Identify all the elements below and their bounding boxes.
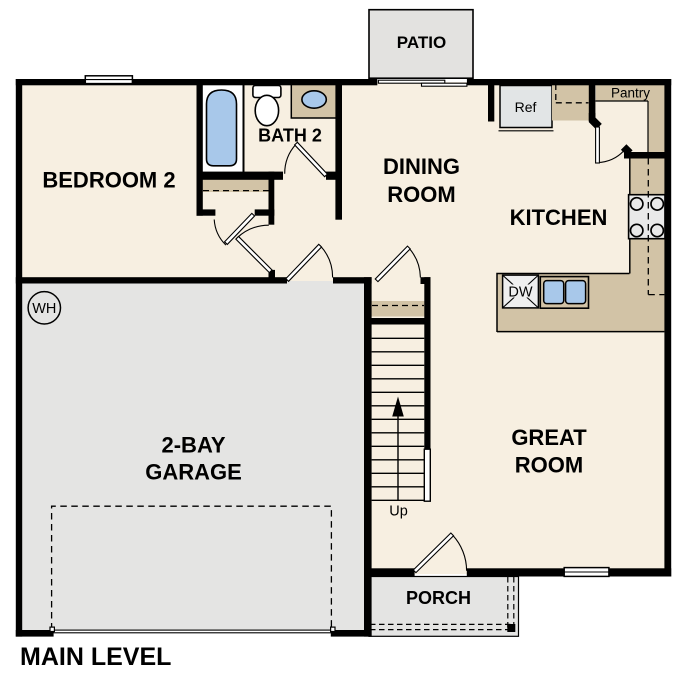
svg-text:GARAGE: GARAGE (145, 460, 242, 485)
svg-text:Pantry: Pantry (611, 86, 650, 101)
svg-text:WH: WH (32, 301, 56, 317)
svg-text:KITCHEN: KITCHEN (510, 205, 608, 230)
svg-text:PATIO: PATIO (397, 33, 446, 52)
svg-text:DW: DW (508, 285, 532, 301)
svg-text:PORCH: PORCH (406, 588, 471, 608)
svg-text:MAIN LEVEL: MAIN LEVEL (20, 643, 171, 671)
svg-text:ROOM: ROOM (515, 453, 583, 478)
svg-text:Up: Up (389, 504, 408, 520)
svg-text:2-BAY: 2-BAY (162, 433, 226, 458)
svg-text:ROOM: ROOM (387, 182, 455, 207)
svg-text:Ref: Ref (515, 99, 537, 115)
svg-text:BEDROOM 2: BEDROOM 2 (42, 168, 175, 193)
svg-text:BATH 2: BATH 2 (258, 126, 322, 146)
svg-text:GREAT: GREAT (511, 425, 587, 450)
svg-text:DINING: DINING (383, 154, 460, 179)
